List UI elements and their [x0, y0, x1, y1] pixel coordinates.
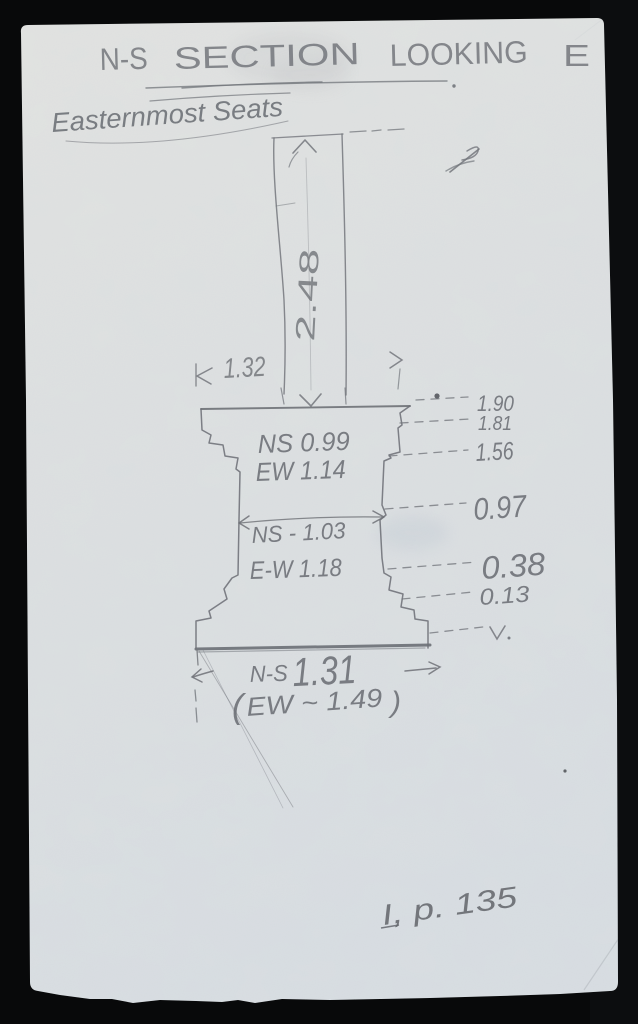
svg-text:LOOKING: LOOKING — [389, 34, 528, 73]
svg-text:E: E — [563, 38, 590, 73]
svg-text:EW 1.14: EW 1.14 — [255, 454, 346, 487]
svg-text:E-W 1.18: E-W 1.18 — [249, 554, 342, 585]
svg-text:1.56: 1.56 — [475, 437, 514, 467]
svg-text:0.38: 0.38 — [480, 546, 547, 586]
svg-text:2.48: 2.48 — [290, 248, 325, 342]
svg-text:SECTION: SECTION — [173, 36, 360, 76]
svg-text:0.13: 0.13 — [479, 581, 531, 610]
svg-text:1.81: 1.81 — [478, 413, 512, 435]
svg-text:NS - 1.03: NS - 1.03 — [251, 517, 346, 548]
svg-text:N-S: N-S — [249, 660, 289, 687]
svg-text:N-S: N-S — [99, 41, 148, 77]
svg-text:0.97: 0.97 — [472, 488, 529, 527]
svg-text:1.32: 1.32 — [223, 351, 267, 384]
